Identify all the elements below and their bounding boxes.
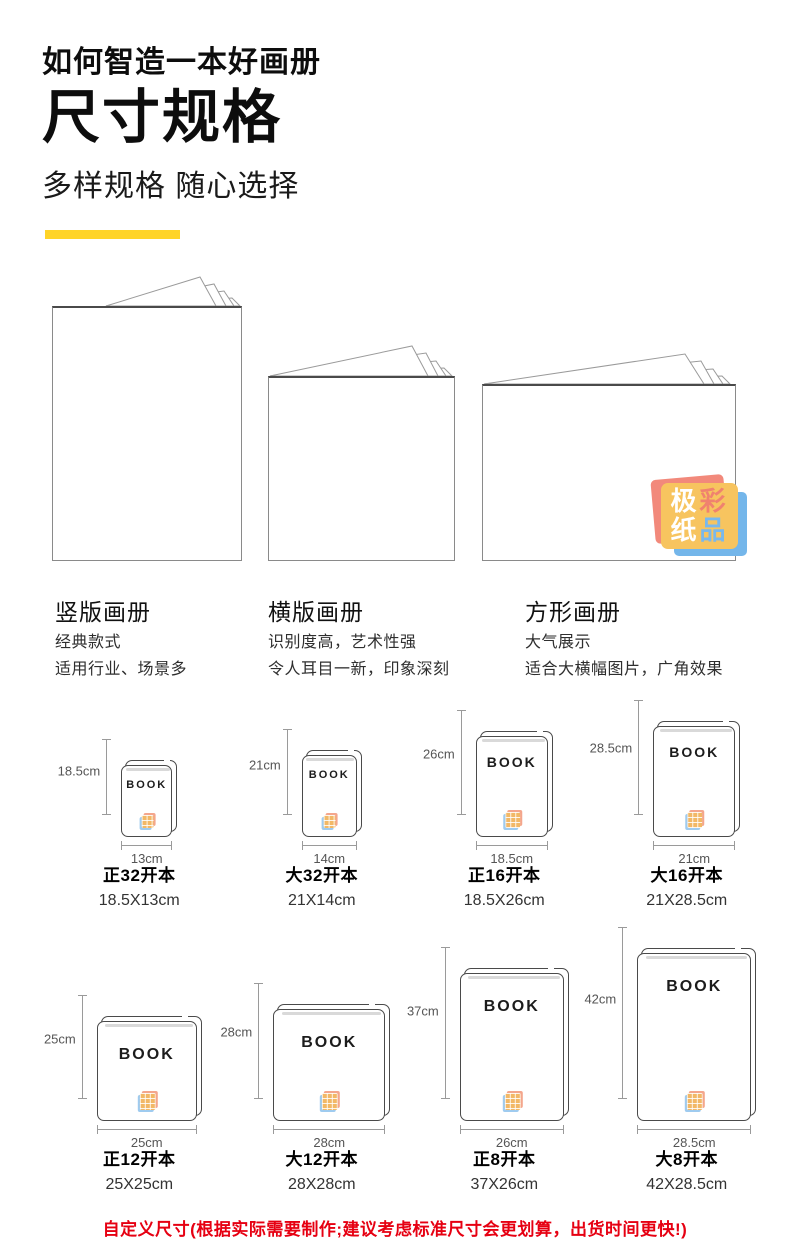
width-dimension-line: 26cm (460, 1129, 564, 1130)
mini-logo (688, 812, 703, 828)
album-type-name: 横版画册 (268, 593, 364, 627)
width-dimension-line: 21cm (653, 845, 735, 846)
width-dimension-label: 13cm (121, 851, 172, 866)
size-dimensions: 18.5X26cm (464, 892, 545, 910)
mini-logo (687, 1093, 703, 1110)
accent-underline (45, 230, 180, 239)
book-front-cover: BOOK (302, 755, 357, 837)
height-dimension-label: 28cm (220, 1024, 252, 1039)
book-diagram: BOOK (653, 726, 735, 837)
page-fan-illustration (48, 264, 252, 308)
width-dimension-line: 14cm (302, 845, 357, 846)
size-dimensions: 28X28cm (288, 1176, 356, 1194)
album-type-description: 大气展示适合大横幅图片，广角效果 (525, 629, 723, 683)
book-diagram: BOOK (273, 1009, 385, 1121)
width-dimension-label: 14cm (302, 851, 357, 866)
book-front-cover: BOOK (476, 736, 548, 837)
custom-size-note: 自定义尺寸(根据实际需要制作;建议考虑标准尺寸会更划算，出货时间更快!) (0, 1215, 790, 1240)
width-dimension-label: 26cm (460, 1135, 564, 1150)
book-front-cover: BOOK (637, 953, 751, 1121)
album-styles-section: 极彩 纸品 竖版画册 横版画册 方形画册 经典款式适用行业、场景多 识别度高，艺… (0, 241, 790, 676)
width-dimension-label: 28.5cm (637, 1135, 751, 1150)
height-dimension-label: 37cm (407, 1003, 439, 1018)
album-type-name: 方形画册 (525, 593, 621, 627)
book-cover-label: BOOK (126, 779, 167, 791)
vertical-album-illustration (52, 306, 242, 561)
size-card: 21cm BOOK 14cm 大32开本 21X14cm (231, 700, 414, 910)
size-dimensions: 18.5X13cm (99, 892, 180, 910)
brand-stamp: 极彩 纸品 (653, 474, 747, 556)
page-fan-illustration (478, 342, 742, 386)
size-diagrams-row-1: 18.5cm BOOK 13cm 正32开本 18.5X13cm 21cm (0, 700, 790, 910)
height-dimension-label: 42cm (584, 992, 616, 1007)
book-cover-label: BOOK (487, 754, 537, 770)
stamp-char: 彩 (700, 486, 729, 516)
horizontal-album-illustration (268, 376, 455, 561)
height-dimension-label: 21cm (249, 758, 281, 773)
height-dimension-label: 25cm (44, 1031, 76, 1046)
page-fan-illustration (264, 334, 460, 378)
width-dimension-line: 28cm (273, 1129, 385, 1130)
mini-logo (324, 815, 336, 828)
height-dimension-label: 28.5cm (590, 741, 633, 756)
book-cover-label: BOOK (666, 978, 722, 996)
book-cover-label: BOOK (119, 1046, 175, 1064)
width-dimension-label: 28cm (273, 1135, 385, 1150)
width-dimension-line: 28.5cm (637, 1129, 751, 1130)
size-dimensions: 25X25cm (105, 1176, 173, 1194)
book-diagram: BOOK (302, 755, 357, 837)
mini-logo (140, 1093, 156, 1110)
book-diagram: BOOK (460, 973, 564, 1121)
mini-logo (322, 1093, 338, 1110)
width-dimension-line: 13cm (121, 845, 172, 846)
book-cover-label: BOOK (301, 1034, 357, 1052)
width-dimension-label: 18.5cm (476, 851, 548, 866)
height-dimension-label: 26cm (423, 747, 455, 762)
book-front-cover: BOOK (97, 1021, 197, 1121)
size-diagrams-row-2: 25cm BOOK 25cm 正12开本 25X25cm 28cm (0, 926, 790, 1194)
book-cover-label: BOOK (669, 744, 719, 760)
height-dimension-label: 18.5cm (58, 763, 101, 778)
mini-logo (505, 1093, 521, 1110)
book-diagram: BOOK (637, 953, 751, 1121)
page-title: 尺寸规格 (42, 85, 790, 151)
size-card: 28cm BOOK 28cm 大12开本 28X28cm (231, 926, 414, 1194)
book-cover-label: BOOK (309, 769, 350, 781)
width-dimension-label: 21cm (653, 851, 735, 866)
album-type-description: 识别度高，艺术性强令人耳目一新，印象深刻 (268, 629, 450, 683)
book-diagram: BOOK (97, 1021, 197, 1121)
stamp-yellow-square: 极彩 纸品 (661, 483, 738, 549)
book-diagram: BOOK (476, 736, 548, 837)
page: 如何智造一本好画册 尺寸规格 多样规格 随心选择 (0, 0, 790, 1247)
mini-logo (505, 812, 520, 828)
album-type-name: 竖版画册 (55, 593, 151, 627)
header: 如何智造一本好画册 尺寸规格 多样规格 随心选择 (0, 0, 790, 239)
width-dimension-line: 18.5cm (476, 845, 548, 846)
width-dimension-line: 25cm (97, 1129, 197, 1130)
kicker-text: 如何智造一本好画册 (42, 46, 790, 80)
page-subtitle: 多样规格 随心选择 (42, 170, 790, 204)
album-type-description: 经典款式适用行业、场景多 (55, 629, 187, 683)
size-dimensions: 21X14cm (288, 892, 356, 910)
size-card: 37cm BOOK 26cm 正8开本 37X26cm (413, 926, 596, 1194)
width-dimension-label: 25cm (97, 1135, 197, 1150)
stamp-char: 纸 (670, 515, 699, 545)
size-card: 42cm BOOK 28.5cm 大8开本 42X28.5cm (596, 926, 779, 1194)
book-front-cover: BOOK (273, 1009, 385, 1121)
stamp-char: 极 (670, 486, 699, 516)
size-card: 25cm BOOK 25cm 正12开本 25X25cm (48, 926, 231, 1194)
size-dimensions: 21X28.5cm (646, 892, 727, 910)
book-front-cover: BOOK (121, 765, 172, 837)
size-card: 18.5cm BOOK 13cm 正32开本 18.5X13cm (48, 700, 231, 910)
book-diagram: BOOK (121, 765, 172, 837)
size-dimensions: 42X28.5cm (646, 1176, 727, 1194)
size-card: 28.5cm BOOK 21cm 大16开本 21X28.5cm (596, 700, 779, 910)
mini-logo (141, 815, 153, 828)
book-front-cover: BOOK (460, 973, 564, 1121)
size-dimensions: 37X26cm (470, 1176, 538, 1194)
stamp-char: 品 (700, 515, 729, 545)
book-front-cover: BOOK (653, 726, 735, 837)
book-cover-label: BOOK (484, 998, 540, 1016)
size-card: 26cm BOOK 18.5cm 正16开本 18.5X26cm (413, 700, 596, 910)
